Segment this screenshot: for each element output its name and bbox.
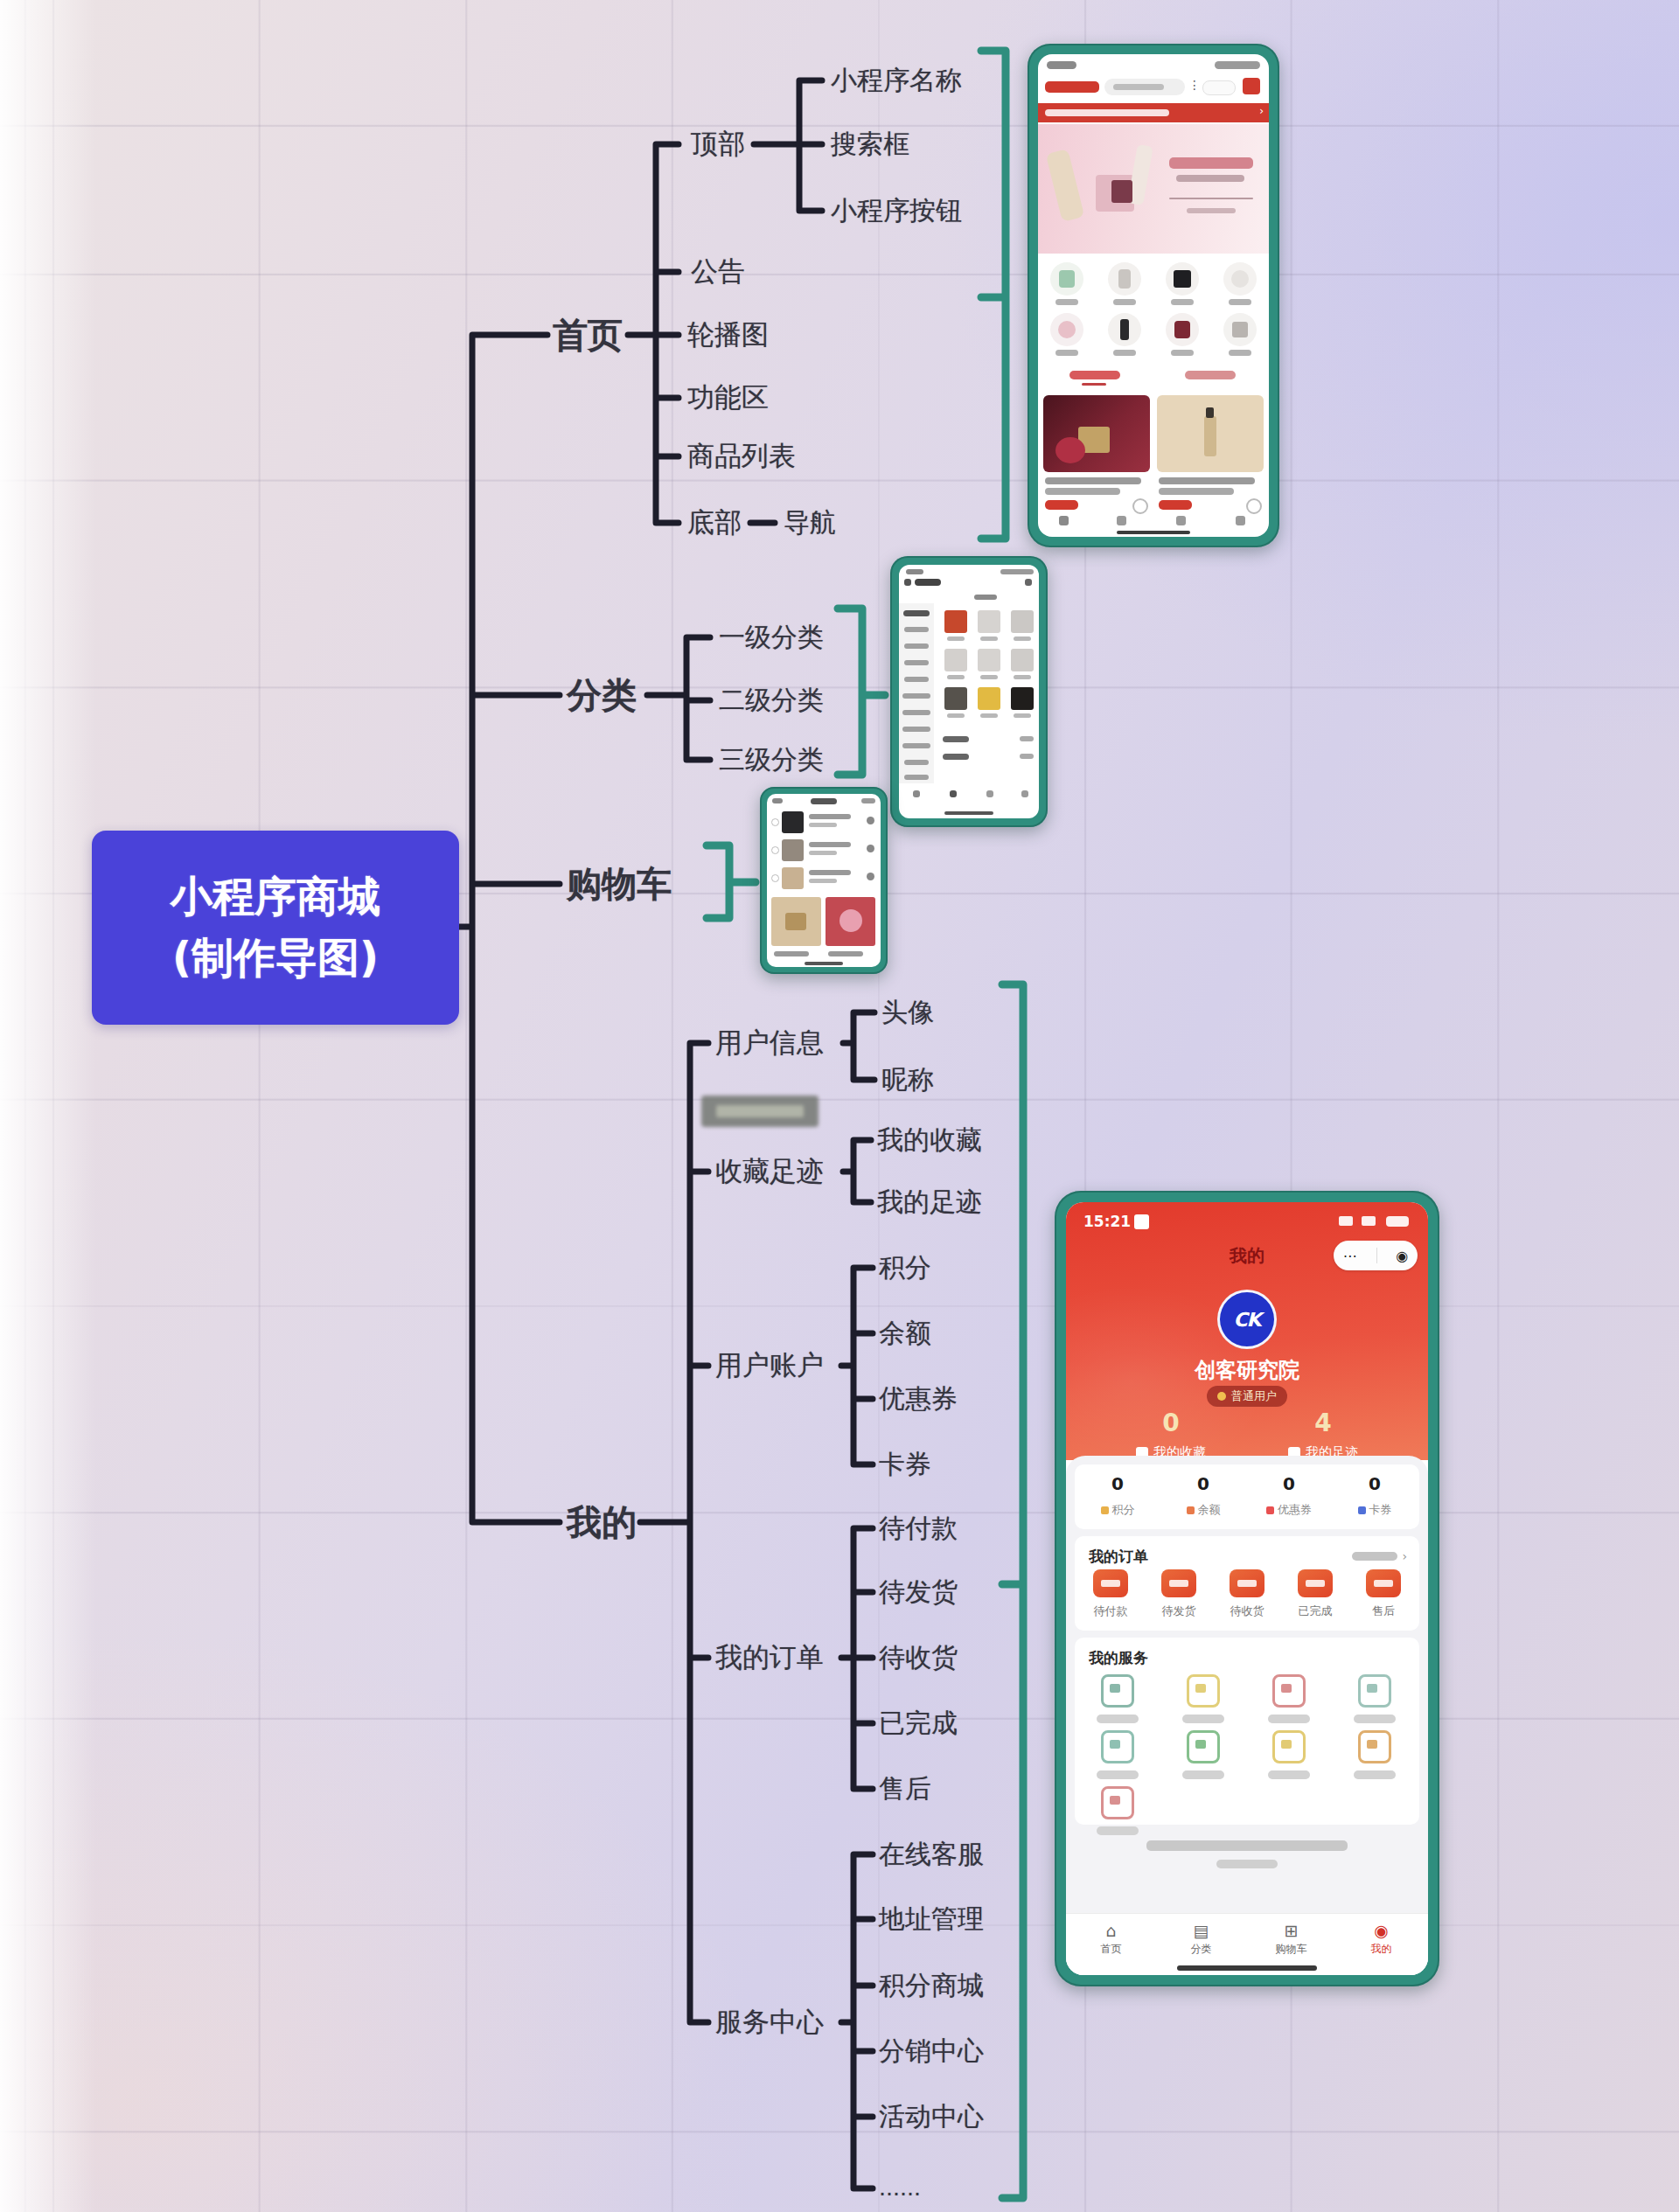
- product-price-blur: [1159, 500, 1192, 510]
- tab-icon[interactable]: [913, 790, 920, 797]
- home-indicator: [805, 962, 843, 965]
- coupon-icon: [1266, 1506, 1274, 1514]
- list-row-meta-blur: [1020, 736, 1034, 741]
- thumb-label-blur: [1014, 636, 1031, 641]
- product-title-blur: [1159, 488, 1234, 495]
- footer-text-blur: [1216, 1860, 1278, 1868]
- node-user-info: 用户信息: [715, 1025, 824, 1061]
- add-cart-icon[interactable]: [1132, 498, 1148, 514]
- favorites-stat[interactable]: 0 我的收藏: [1092, 1409, 1250, 1461]
- node-navigation: 导航: [784, 505, 836, 541]
- list-row-blur[interactable]: [943, 754, 969, 760]
- more-dots-icon[interactable]: ⋮: [1188, 78, 1201, 92]
- quick-entry-icon[interactable]: [1108, 313, 1141, 346]
- node-account: 用户账户: [715, 1347, 824, 1384]
- node-after-sale: 售后: [879, 1771, 931, 1807]
- list-row-meta-blur: [1020, 754, 1034, 759]
- row-checkbox[interactable]: [771, 818, 779, 826]
- category-thumb[interactable]: [1011, 610, 1034, 633]
- thumb-label-blur: [1014, 713, 1031, 718]
- node-announcement: 公告: [691, 254, 745, 290]
- watermark-blur: [701, 1096, 819, 1127]
- thumb-label-blur: [947, 636, 965, 641]
- tab-home[interactable]: ⌂首页: [1066, 1921, 1156, 1957]
- quick-entry-icon[interactable]: [1050, 262, 1083, 296]
- tab-icon[interactable]: [986, 790, 993, 797]
- service-label-blur: [1182, 1770, 1224, 1779]
- points-icon: [1101, 1506, 1109, 1514]
- node-category-l2: 二级分类: [719, 683, 824, 719]
- service-item[interactable]: [1075, 1786, 1160, 1835]
- cart-phone-screen: [767, 794, 881, 967]
- order-completed[interactable]: 已完成: [1281, 1569, 1349, 1619]
- footprints-stat[interactable]: 4 我的足迹: [1244, 1409, 1402, 1461]
- status-icons-blur: [1000, 569, 1034, 574]
- user-icon: ◉: [1336, 1921, 1426, 1940]
- sidebar-item-blur[interactable]: [904, 643, 929, 649]
- banner-caption-blur: [1187, 208, 1236, 213]
- home-phone-frame: ⋮ ›: [1028, 44, 1279, 547]
- sidebar-item-blur[interactable]: [902, 727, 930, 732]
- thumb-label-blur: [980, 675, 998, 679]
- product-price-blur: [1045, 500, 1078, 510]
- service-label-blur: [1097, 1826, 1139, 1835]
- footer-text-blur: [1146, 1840, 1348, 1851]
- service-label-blur: [1268, 1770, 1310, 1779]
- hero-banner[interactable]: [1038, 124, 1269, 254]
- page-title-blur: [915, 579, 941, 586]
- account-stats-card: 0 积分 0 余额 0 优惠券 0 卡券: [1075, 1464, 1419, 1529]
- truck-icon: [1230, 1569, 1264, 1597]
- node-completed: 已完成: [879, 1706, 958, 1742]
- cart-item-thumb: [782, 867, 804, 889]
- entry-label-blur: [1113, 350, 1136, 356]
- quick-entry-icon[interactable]: [1166, 313, 1199, 346]
- signal-icon: [1339, 1216, 1353, 1226]
- recommend-title-blur: [828, 951, 863, 956]
- sidebar-item-blur[interactable]: [904, 760, 929, 765]
- thumb-label-blur: [980, 636, 998, 641]
- sidebar-item-blur[interactable]: [904, 660, 929, 665]
- user-level-badge: 普通用户: [1207, 1386, 1287, 1407]
- recommend-image[interactable]: [771, 897, 821, 946]
- node-home-bottom: 底部: [687, 504, 742, 541]
- card-icon: [1358, 1506, 1366, 1514]
- quick-entry-icon[interactable]: [1108, 262, 1141, 296]
- thumb-label-blur: [947, 713, 965, 718]
- node-service-center: 服务中心: [715, 2004, 824, 2041]
- thumb-label-blur: [980, 713, 998, 718]
- cart-item-sub-blur: [809, 879, 837, 883]
- service-label-blur: [1354, 1715, 1396, 1723]
- category-thumb[interactable]: [1011, 687, 1034, 710]
- node-avatar: 头像: [881, 995, 934, 1031]
- service-item[interactable]: [1246, 1674, 1332, 1723]
- tab-mine[interactable]: ◉我的: [1336, 1921, 1426, 1957]
- tab-icon[interactable]: [1059, 516, 1069, 525]
- banner-product-bottle: [1046, 149, 1085, 222]
- tab-icon[interactable]: [950, 790, 957, 797]
- cart-item-title-blur: [809, 814, 851, 819]
- orders-card: 我的订单 › 待付款 待发货 待收货 已完成 售后: [1075, 1536, 1419, 1631]
- sidebar-item-blur[interactable]: [902, 743, 930, 748]
- tab-cart[interactable]: ⊞购物车: [1246, 1921, 1336, 1957]
- list-row-blur[interactable]: [943, 736, 969, 742]
- status-time: 15:21: [1083, 1213, 1131, 1230]
- cart-title-blur: [811, 798, 837, 804]
- cart-icon[interactable]: [1025, 579, 1032, 586]
- battery-icon: [1386, 1216, 1409, 1227]
- package-icon: [1161, 1569, 1196, 1597]
- level-icon: [1217, 1392, 1226, 1401]
- thumb-label-blur: [947, 675, 965, 679]
- footprints-value: 4: [1244, 1409, 1402, 1437]
- category-thumb[interactable]: [978, 610, 1000, 633]
- category-thumb[interactable]: [978, 687, 1000, 710]
- service-item[interactable]: [1160, 1674, 1246, 1723]
- tab-category[interactable]: ▤分类: [1156, 1921, 1246, 1957]
- root-title-line2: (制作导图): [172, 928, 379, 989]
- announcement-bar[interactable]: ›: [1038, 103, 1269, 122]
- node-online-service: 在线客服: [879, 1837, 984, 1873]
- check-badge-icon: [1298, 1569, 1333, 1597]
- row-checkbox[interactable]: [771, 846, 779, 854]
- orders-more-link[interactable]: ›: [1352, 1549, 1407, 1563]
- entry-label-blur: [1055, 350, 1078, 356]
- mindmap-screenshot: 小程序商城 (制作导图) 首页 顶部 小程序名称 搜索框 小程序按钮 公告 轮播…: [0, 0, 1679, 2212]
- quick-entry-icon[interactable]: [1223, 313, 1257, 346]
- node-mine: 我的: [567, 1499, 637, 1547]
- home-phone-screen: ⋮ ›: [1038, 54, 1269, 537]
- order-pending-payment[interactable]: 待付款: [1076, 1569, 1145, 1619]
- node-category-l1: 一级分类: [719, 620, 824, 656]
- announcement-chevron-icon: ›: [1259, 105, 1264, 117]
- recommend-title-blur: [774, 951, 809, 956]
- home-indicator: [1177, 1965, 1317, 1971]
- category-icon: ▤: [1156, 1921, 1246, 1940]
- capsule-divider: [1376, 1248, 1377, 1263]
- search-input[interactable]: [1104, 79, 1185, 95]
- avatar[interactable]: CK: [1217, 1290, 1277, 1349]
- category-thumb[interactable]: [944, 610, 967, 633]
- entry-label-blur: [1171, 299, 1194, 305]
- cart-item-sub-blur: [809, 823, 837, 827]
- search-placeholder-blur: [1113, 84, 1164, 90]
- feed-tab-underline: [1082, 383, 1106, 386]
- node-cards: 卡券: [879, 1447, 931, 1483]
- sidebar-item-blur[interactable]: [904, 775, 929, 780]
- sidebar-item-blur[interactable]: [904, 677, 929, 682]
- cart-item-thumb: [782, 839, 804, 861]
- balance-icon: [1187, 1506, 1195, 1514]
- node-coupons: 优惠券: [879, 1381, 958, 1417]
- banner-headline-blur: [1169, 157, 1253, 169]
- node-my-favorites: 我的收藏: [877, 1123, 982, 1158]
- node-miniprogram-name: 小程序名称: [831, 63, 962, 99]
- sidebar-item-active-blur[interactable]: [903, 610, 930, 616]
- node-address-management: 地址管理: [879, 1902, 984, 1937]
- row-checkbox[interactable]: [771, 874, 779, 882]
- section-title-blur: [974, 595, 997, 600]
- status-time-blur: [906, 569, 923, 574]
- service-item[interactable]: [1332, 1730, 1418, 1779]
- member-icon[interactable]: [1243, 78, 1260, 94]
- node-pending-shipment: 待发货: [879, 1575, 958, 1610]
- entry-label-blur: [1229, 299, 1251, 305]
- menu-icon[interactable]: [904, 579, 911, 586]
- cart-item-thumb: [782, 811, 804, 833]
- node-ellipsis: ……: [879, 2176, 921, 2201]
- node-balance: 余额: [879, 1316, 931, 1352]
- node-footprints: 收藏足迹: [715, 1153, 824, 1190]
- sidebar-item-blur[interactable]: [904, 627, 929, 632]
- back-icon-blur[interactable]: [772, 798, 783, 803]
- node-function-area: 功能区: [687, 379, 769, 416]
- node-points: 积分: [879, 1250, 931, 1286]
- tab-icon[interactable]: [1176, 516, 1186, 525]
- qty-stepper-blur[interactable]: [867, 845, 874, 852]
- avatar-logo: CK: [1233, 1309, 1260, 1331]
- product-title-blur: [1045, 488, 1120, 495]
- profile-phone-screen: 15:21 我的 ⋯ ◉ CK 创客研究院 普通用户 0 我的收藏 4 我的足迹: [1066, 1202, 1428, 1975]
- announcement-text-blur: [1045, 109, 1169, 116]
- stat-points[interactable]: 0 积分: [1075, 1473, 1160, 1518]
- tab-icon[interactable]: [1117, 516, 1126, 525]
- node-home: 首页: [553, 311, 623, 359]
- status-time-blur: [1047, 61, 1076, 69]
- cart-item-title-blur: [809, 870, 851, 875]
- stat-balance[interactable]: 0 余额: [1160, 1473, 1246, 1518]
- service-label-blur: [1097, 1770, 1139, 1779]
- headset-icon: [1366, 1569, 1401, 1597]
- quick-entry-icon[interactable]: [1050, 313, 1083, 346]
- service-label-blur: [1097, 1715, 1139, 1723]
- node-points-mall: 积分商城: [879, 1968, 984, 2004]
- category-thumb[interactable]: [944, 649, 967, 671]
- root-node: 小程序商城 (制作导图): [92, 831, 459, 1025]
- capsule-dots-icon[interactable]: ⋯: [1343, 1248, 1357, 1264]
- services-title: 我的服务: [1089, 1648, 1148, 1668]
- home-icon: ⌂: [1066, 1921, 1156, 1940]
- node-my-footprints: 我的足迹: [877, 1185, 982, 1221]
- service-label-blur: [1354, 1770, 1396, 1779]
- node-nickname: 昵称: [881, 1062, 934, 1098]
- thumb-label-blur: [1014, 675, 1031, 679]
- service-item[interactable]: [1246, 1730, 1332, 1779]
- wallet-icon: [1093, 1569, 1128, 1597]
- quick-entry-icon[interactable]: [1223, 262, 1257, 296]
- favorites-value: 0: [1092, 1409, 1250, 1437]
- capsule-button[interactable]: ⋯ ◉: [1334, 1241, 1418, 1270]
- node-product-list: 商品列表: [687, 438, 796, 475]
- feed-tab-active-blur[interactable]: [1069, 371, 1120, 379]
- node-home-top: 顶部: [691, 126, 745, 163]
- tab-icon[interactable]: [1021, 790, 1028, 797]
- entry-label-blur: [1171, 350, 1194, 356]
- home-indicator: [1117, 531, 1190, 534]
- status-badge-icon: [1134, 1214, 1149, 1229]
- stat-coupons[interactable]: 0 优惠券: [1246, 1473, 1332, 1518]
- capsule-target-icon[interactable]: ◉: [1396, 1248, 1408, 1264]
- stat-cards[interactable]: 0 卡券: [1332, 1473, 1418, 1518]
- qty-stepper-blur[interactable]: [867, 873, 874, 880]
- home-indicator: [944, 811, 993, 815]
- feed-tab-blur[interactable]: [1185, 371, 1236, 379]
- node-category: 分类: [567, 671, 637, 720]
- node-my-orders: 我的订单: [715, 1639, 824, 1676]
- service-item[interactable]: [1075, 1674, 1160, 1723]
- category-phone-screen: [899, 565, 1039, 818]
- tab-icon[interactable]: [1236, 516, 1245, 525]
- qty-stepper-blur[interactable]: [867, 817, 874, 824]
- service-label-blur: [1268, 1715, 1310, 1723]
- quick-entry-icon[interactable]: [1166, 262, 1199, 296]
- node-search-box: 搜索框: [831, 127, 909, 163]
- add-cart-icon[interactable]: [1246, 498, 1262, 514]
- services-card: 我的服务: [1075, 1638, 1419, 1825]
- node-pending-receipt: 待收货: [879, 1640, 958, 1676]
- order-pending-receipt[interactable]: 待收货: [1213, 1569, 1281, 1619]
- profile-tabbar: ⌂首页 ▤分类 ⊞购物车 ◉我的: [1066, 1913, 1428, 1975]
- sidebar-item-blur[interactable]: [902, 710, 930, 715]
- order-after-sale[interactable]: 售后: [1349, 1569, 1418, 1619]
- capsule-button[interactable]: [1202, 80, 1236, 95]
- node-cart: 购物车: [567, 860, 672, 908]
- service-label-blur: [1182, 1715, 1224, 1723]
- profile-body-sheet: 0 积分 0 余额 0 优惠券 0 卡券: [1066, 1456, 1428, 1975]
- orders-title: 我的订单: [1089, 1547, 1148, 1567]
- entry-label-blur: [1113, 299, 1136, 305]
- entry-label-blur: [1055, 299, 1078, 305]
- sidebar-item-blur[interactable]: [902, 693, 930, 699]
- node-miniprogram-button: 小程序按钮: [831, 193, 962, 229]
- cart-item-sub-blur: [809, 851, 837, 855]
- product-image[interactable]: [1157, 395, 1264, 472]
- category-phone-frame: [890, 556, 1048, 827]
- banner-divider: [1169, 198, 1253, 199]
- product-image[interactable]: [1043, 395, 1150, 472]
- node-distribution-center: 分销中心: [879, 2034, 984, 2069]
- category-thumb[interactable]: [978, 649, 1000, 671]
- service-item[interactable]: [1160, 1730, 1246, 1779]
- service-item[interactable]: [1332, 1674, 1418, 1723]
- cart-item-title-blur: [809, 842, 851, 847]
- manage-button-blur[interactable]: [861, 798, 875, 803]
- node-carousel: 轮播图: [687, 316, 769, 353]
- cart-icon: ⊞: [1246, 1921, 1336, 1940]
- recommend-image[interactable]: [826, 897, 875, 946]
- category-thumb[interactable]: [944, 687, 967, 710]
- order-pending-shipment[interactable]: 待发货: [1145, 1569, 1213, 1619]
- orders-more-blur: [1352, 1552, 1397, 1561]
- status-icons-blur: [1215, 61, 1260, 69]
- entry-label-blur: [1229, 350, 1251, 356]
- root-title-line1: 小程序商城: [171, 866, 380, 928]
- profile-phone-frame: 15:21 我的 ⋯ ◉ CK 创客研究院 普通用户 0 我的收藏 4 我的足迹: [1055, 1191, 1439, 1986]
- banner-product-compact: [1111, 180, 1132, 203]
- chevron-right-icon: ›: [1402, 1549, 1407, 1563]
- node-category-l3: 三级分类: [719, 742, 824, 778]
- username: 创客研究院: [1066, 1356, 1428, 1384]
- cart-phone-frame: [760, 787, 888, 974]
- banner-subtext-blur: [1176, 175, 1244, 182]
- store-logo-blur: [1045, 81, 1099, 93]
- wifi-icon: [1362, 1216, 1376, 1226]
- service-item[interactable]: [1075, 1730, 1160, 1779]
- node-activity-center: 活动中心: [879, 2099, 984, 2135]
- category-thumb[interactable]: [1011, 649, 1034, 671]
- product-title-blur: [1159, 477, 1255, 484]
- product-title-blur: [1045, 477, 1141, 484]
- node-pending-payment: 待付款: [879, 1511, 958, 1547]
